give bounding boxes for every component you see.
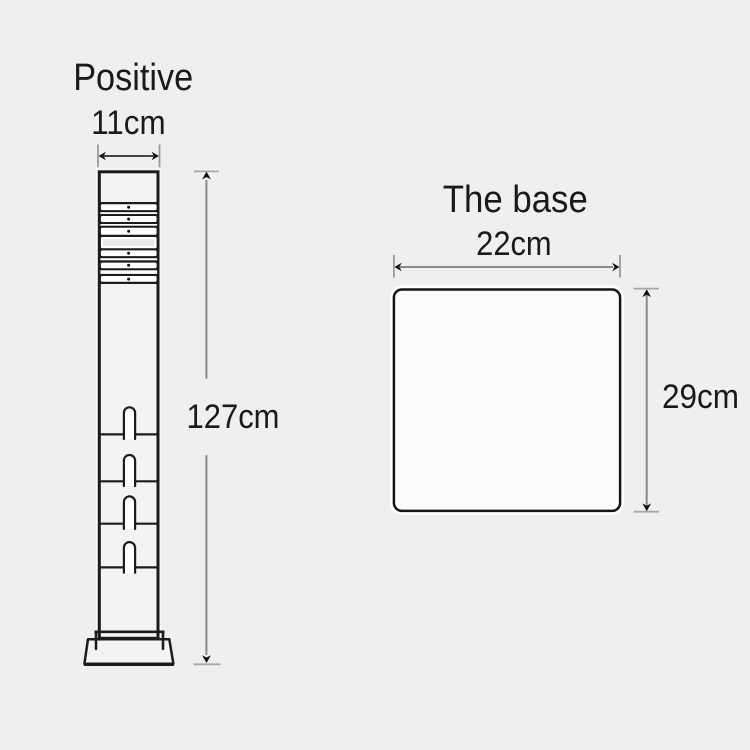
svg-text:The base: The base (443, 179, 588, 221)
svg-text:29cm: 29cm (662, 378, 739, 416)
svg-text:22cm: 22cm (476, 225, 552, 263)
svg-text:127cm: 127cm (187, 398, 280, 436)
svg-text:11cm: 11cm (91, 104, 166, 142)
svg-text:Positive: Positive (73, 57, 193, 99)
